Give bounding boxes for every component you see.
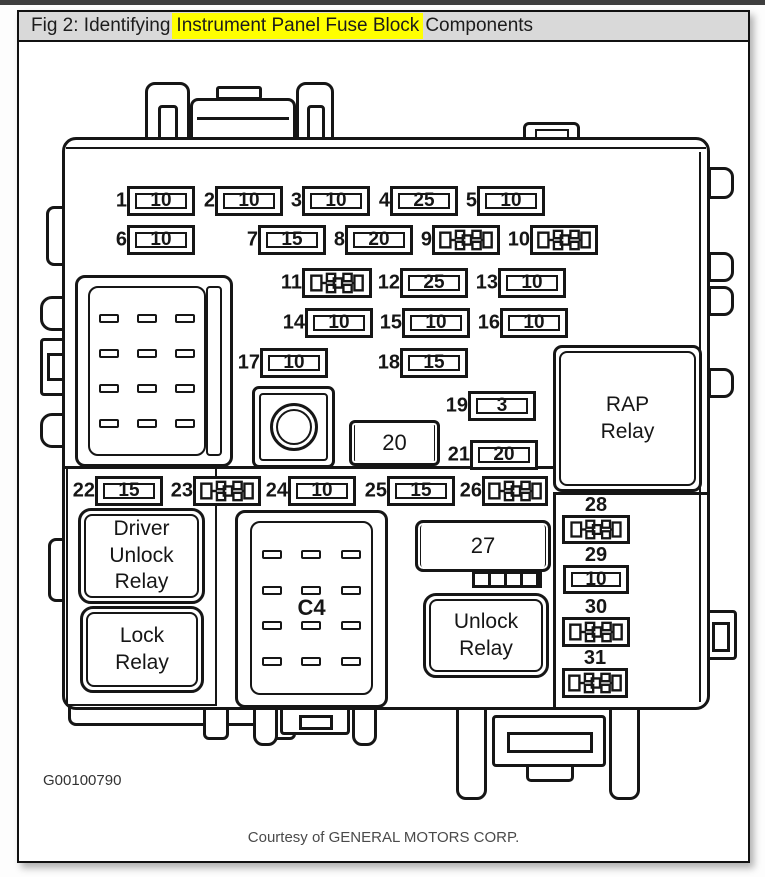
connector-slot [262, 550, 282, 559]
window-top-bar [0, 0, 765, 5]
fuse-2-number: 2 [204, 190, 215, 213]
connector-slot [137, 384, 157, 393]
component-20: 20 [349, 420, 440, 466]
side-bump-right-4 [708, 368, 734, 398]
connector-slot [341, 550, 361, 559]
figure-code: G00100790 [43, 772, 121, 789]
connector-slot [99, 349, 119, 358]
inner-top-line [66, 147, 706, 149]
breaker-28: 28 [562, 515, 630, 544]
fuse-2-amp: 10 [223, 193, 275, 209]
fuse-4-amp: 25 [398, 193, 450, 209]
connector-slot [262, 621, 282, 630]
fuse-25-number: 25 [365, 480, 387, 503]
connector-slot [137, 419, 157, 428]
fuse-19-number: 19 [446, 395, 468, 418]
fuse-29-number: 29 [585, 544, 607, 567]
component-27: 27 [415, 520, 551, 572]
breaker-26-number: 26 [460, 480, 482, 503]
fuse-7-number: 7 [247, 229, 258, 252]
top-connector-line [197, 117, 289, 120]
fuse-5: 510 [477, 186, 545, 216]
lock-relay-label: Lock Relay [111, 623, 173, 677]
fuse-22-number: 22 [73, 480, 95, 503]
connector-slot [341, 586, 361, 595]
socket-ring [270, 403, 318, 451]
breaker-icon [485, 479, 545, 503]
connector-slot [262, 657, 282, 666]
breaker-9-number: 9 [421, 229, 432, 252]
fuse-19: 193 [468, 391, 536, 421]
unlock-relay: Unlock Relay [423, 593, 549, 678]
side-tab-inner [712, 622, 730, 652]
connector-slot [301, 657, 321, 666]
mount-tab-inner [307, 105, 325, 141]
connector-slot [99, 384, 119, 393]
fuse-25-amp: 15 [395, 483, 447, 499]
component-27-label: 27 [471, 533, 495, 559]
fuse-29-amp: 10 [571, 572, 621, 587]
connector-slot [137, 349, 157, 358]
fuse-15: 1510 [402, 308, 470, 338]
connector-slot [175, 384, 195, 393]
fuse-16: 1610 [500, 308, 568, 338]
fuse-7-amp: 15 [266, 232, 318, 248]
fuse-17: 1710 [260, 348, 328, 378]
fuse-12: 1225 [400, 268, 468, 298]
fuse-3-number: 3 [291, 190, 302, 213]
fuse-6-amp: 10 [135, 232, 187, 248]
fuse-14-number: 14 [283, 312, 305, 335]
connector-slot [137, 314, 157, 323]
page-canvas: Fig 2: IdentifyingInstrument Panel Fuse … [0, 0, 765, 877]
connector-c4-slots: C4 [250, 521, 373, 695]
fuse-17-amp: 10 [268, 355, 320, 371]
courtesy-text: Courtesy of GENERAL MOTORS CORP. [17, 829, 750, 846]
fuse-1-number: 1 [116, 190, 127, 213]
breaker-23-number: 23 [171, 480, 193, 503]
fuse-24-number: 24 [266, 480, 288, 503]
fuse-21-amp: 20 [478, 447, 530, 463]
fuse-4-number: 4 [379, 190, 390, 213]
breaker-11: 11 [302, 268, 372, 298]
fuse-16-amp: 10 [508, 315, 560, 331]
breaker-23: 23 [193, 476, 261, 506]
fuse-1: 110 [127, 186, 195, 216]
fuse-7: 715 [258, 225, 326, 255]
title-suffix: Components [425, 15, 533, 37]
side-bump-right-1 [708, 167, 734, 199]
fuse-6-number: 6 [116, 229, 127, 252]
breaker-9: 9 [432, 225, 500, 255]
fuse-22: 2215 [95, 476, 163, 506]
bottom-connector-tab [526, 764, 574, 782]
connector-slot [175, 349, 195, 358]
breaker-icon [565, 671, 625, 695]
connector-slot [175, 419, 195, 428]
breaker-26: 26 [482, 476, 548, 506]
fuse-17-number: 17 [238, 352, 260, 375]
title-highlight: Instrument Panel Fuse Block [172, 13, 423, 39]
fuse-8: 820 [345, 225, 413, 255]
mount-tab-inner [158, 105, 178, 141]
connector-slot [301, 621, 321, 630]
fuse-24-amp: 10 [296, 483, 348, 499]
top-connector [190, 98, 296, 140]
connector-slot [99, 314, 119, 323]
fuse-18-number: 18 [378, 352, 400, 375]
breaker-icon [565, 518, 627, 541]
title-prefix: Fig 2: Identifying [31, 15, 170, 37]
mount-tab-top-mid [296, 82, 334, 142]
figure-title: Fig 2: IdentifyingInstrument Panel Fuse … [17, 10, 750, 42]
breaker-icon [533, 228, 595, 252]
fuse-6: 610 [127, 225, 195, 255]
fuse-19-amp: 3 [476, 398, 528, 414]
component-20-label: 20 [382, 430, 406, 456]
relay-socket [252, 386, 335, 468]
connector-slot [262, 586, 282, 595]
fuse-8-number: 8 [334, 229, 345, 252]
fuse-8-amp: 20 [353, 232, 405, 248]
driver-unlock-relay-label: Driver Unlock Relay [105, 516, 179, 597]
side-bump-right-2 [708, 252, 734, 282]
connector-left [75, 275, 233, 467]
breaker-30-number: 30 [585, 596, 607, 619]
fuse-21-number: 21 [448, 444, 470, 467]
connector-left-slots [88, 286, 206, 456]
connector-slot [301, 586, 321, 595]
fuse-15-number: 15 [380, 312, 402, 335]
fuse-14: 1410 [305, 308, 373, 338]
breaker-11-number: 11 [281, 272, 302, 295]
driver-unlock-relay: Driver Unlock Relay [78, 508, 205, 604]
breaker-30: 30 [562, 617, 630, 647]
fuse-3: 310 [302, 186, 370, 216]
rap-relay-label: RAP Relay [595, 392, 661, 446]
breaker-icon [305, 271, 369, 295]
breaker-icon [196, 479, 258, 503]
fuse-3-amp: 10 [310, 193, 362, 209]
breaker-31: 31 [562, 668, 628, 698]
connector-slot [175, 314, 195, 323]
side-bump-right-3 [708, 286, 734, 316]
fuse-18-amp: 15 [408, 355, 460, 371]
unlock-relay-label: Unlock Relay [448, 609, 524, 663]
top-connector-cap [216, 86, 262, 100]
connector-c4-label: C4 [294, 595, 328, 621]
section-divider-v [553, 492, 556, 708]
breaker-icon [565, 620, 627, 644]
fuse-21: 2120 [470, 440, 538, 470]
section-divider-h2 [553, 492, 707, 495]
fuse-1-amp: 10 [135, 193, 187, 209]
fuse-22-amp: 15 [103, 483, 155, 499]
connector-slot [341, 621, 361, 630]
bottom-connector-right [492, 715, 606, 767]
fuse-15-amp: 10 [410, 315, 462, 331]
breaker-10-number: 10 [508, 229, 530, 252]
breaker-31-number: 31 [584, 647, 606, 670]
breaker-10: 10 [530, 225, 598, 255]
fuse-25: 2515 [387, 476, 455, 506]
fuse-12-number: 12 [378, 272, 400, 295]
fuse-4: 425 [390, 186, 458, 216]
rap-relay: RAP Relay [553, 345, 702, 492]
fuse-13-amp: 10 [506, 275, 558, 291]
connector-slot [301, 550, 321, 559]
fuse-2: 210 [215, 186, 283, 216]
breaker-icon [435, 228, 497, 252]
fuse-5-number: 5 [466, 190, 477, 213]
breaker-28-number: 28 [585, 494, 607, 517]
mount-tab-top-left [145, 82, 190, 142]
fuse-18: 1815 [400, 348, 468, 378]
fuse-12-amp: 25 [408, 275, 460, 291]
component-27-connector [472, 571, 542, 588]
lock-relay: Lock Relay [80, 606, 204, 693]
connector-slot [341, 657, 361, 666]
bottom-connector-inner [507, 732, 593, 753]
bottom-connector-inner [299, 715, 333, 730]
fuse-24: 2410 [288, 476, 356, 506]
fuse-14-amp: 10 [313, 315, 365, 331]
fuse-16-number: 16 [478, 312, 500, 335]
fuse-29: 2910 [563, 565, 629, 594]
fuse-5-amp: 10 [485, 193, 537, 209]
fuse-13-number: 13 [476, 272, 498, 295]
connector-slot [99, 419, 119, 428]
fuse-13: 1310 [498, 268, 566, 298]
connector-c4: C4 [235, 510, 388, 708]
